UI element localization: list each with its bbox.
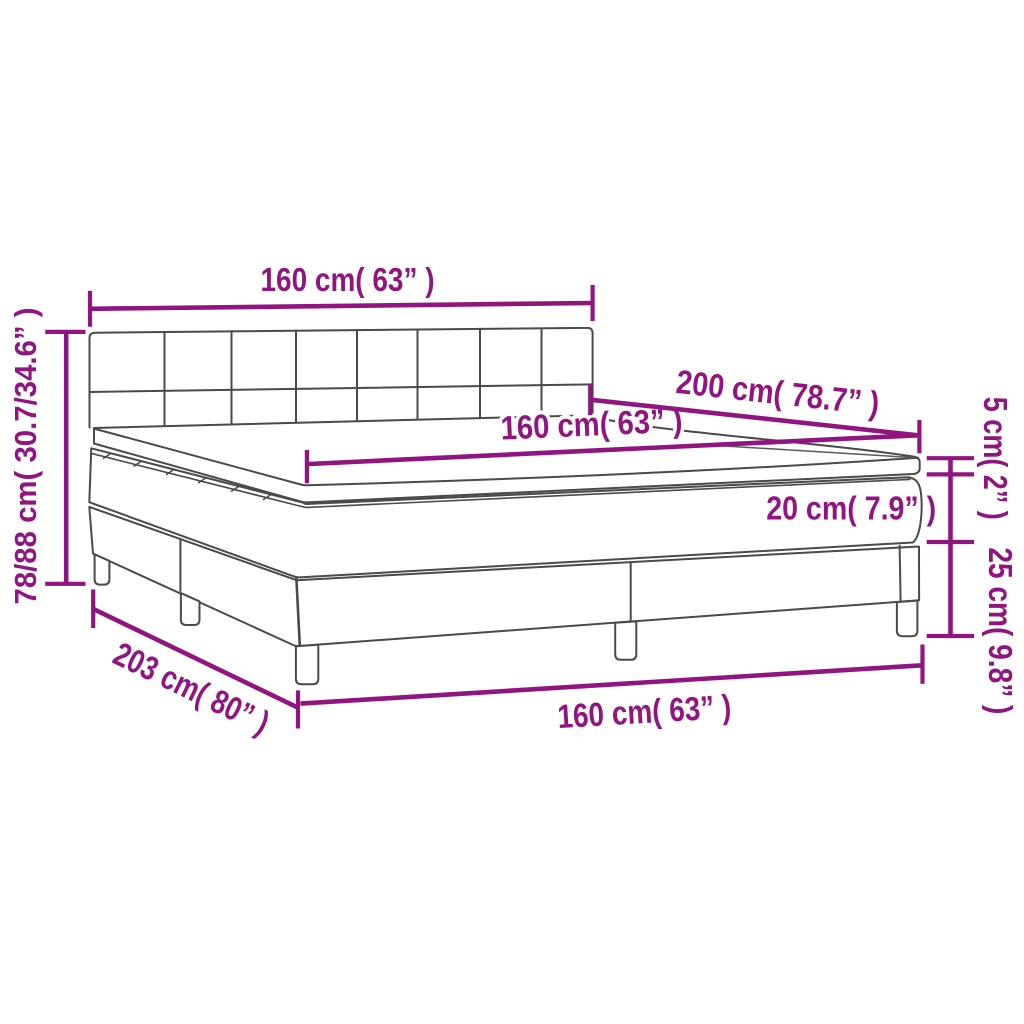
svg-text:78/88 cm( 30.7/34.6” ): 78/88 cm( 30.7/34.6” ) — [8, 308, 43, 605]
svg-text:160 cm( 63” ): 160 cm( 63” ) — [261, 262, 435, 299]
svg-text:25 cm( 9.8” ): 25 cm( 9.8” ) — [981, 547, 1018, 714]
svg-text:5 cm( 2” ): 5 cm( 2” ) — [976, 397, 1013, 520]
svg-text:20 cm( 7.9” ): 20 cm( 7.9” ) — [766, 491, 936, 528]
